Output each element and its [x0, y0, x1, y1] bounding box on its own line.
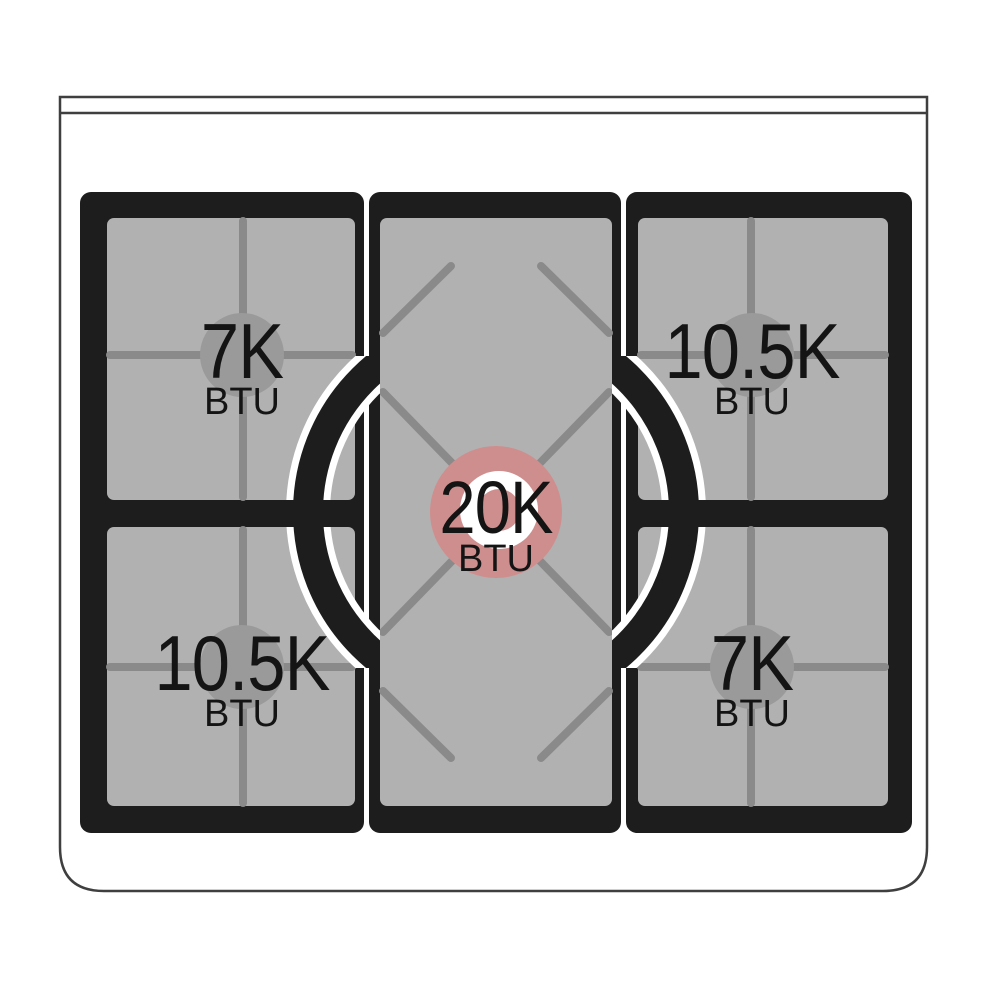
burner-value-front-left: 10.5K [143, 624, 342, 702]
burner-unit-front-right: BTU [714, 695, 790, 733]
burner-value-rear-right: 10.5K [653, 312, 852, 390]
burner-value-rear-left: 7K [195, 312, 288, 390]
grate-divider-right-patch [628, 500, 714, 527]
burner-value-center: 20K [432, 471, 561, 545]
grate-divider-left-patch [278, 500, 364, 527]
burner-unit-center: BTU [458, 540, 534, 578]
burner-unit-rear-left: BTU [204, 383, 280, 421]
burner-unit-rear-right: BTU [714, 383, 790, 421]
burner-value-front-right: 7K [705, 624, 798, 702]
cooktop-diagram: 7K BTU 10.5K BTU 20K BTU 10.5K BTU 7K BT… [0, 0, 1000, 1000]
burner-unit-front-left: BTU [204, 695, 280, 733]
